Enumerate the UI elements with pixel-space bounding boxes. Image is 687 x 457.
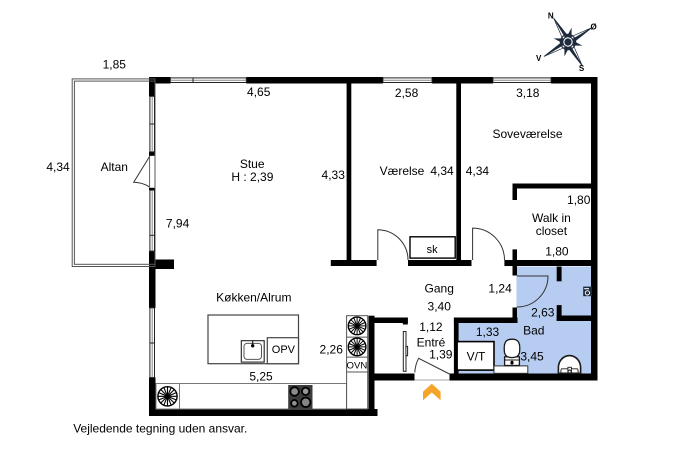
svg-text:OPV: OPV bbox=[272, 344, 296, 356]
svg-text:1,80: 1,80 bbox=[567, 193, 591, 207]
svg-text:Soveværelse: Soveværelse bbox=[492, 127, 562, 141]
svg-text:Gang: Gang bbox=[425, 282, 454, 296]
svg-text:7,94: 7,94 bbox=[166, 216, 190, 230]
svg-text:1,33: 1,33 bbox=[476, 325, 500, 339]
svg-text:4,34: 4,34 bbox=[430, 164, 454, 178]
svg-text:2,26: 2,26 bbox=[320, 343, 344, 357]
svg-text:V: V bbox=[536, 54, 542, 63]
svg-text:3,18: 3,18 bbox=[516, 86, 540, 100]
svg-text:1,39: 1,39 bbox=[429, 347, 453, 361]
svg-text:4,33: 4,33 bbox=[322, 168, 346, 182]
svg-text:Altan: Altan bbox=[101, 160, 128, 174]
svg-text:3,45: 3,45 bbox=[520, 349, 544, 363]
svg-text:1,80: 1,80 bbox=[545, 245, 569, 259]
svg-text:1,24: 1,24 bbox=[488, 281, 512, 295]
svg-text:closet: closet bbox=[536, 224, 568, 238]
svg-text:OVN: OVN bbox=[347, 360, 368, 371]
svg-text:4,34: 4,34 bbox=[466, 164, 490, 178]
svg-text:H : 2,39: H : 2,39 bbox=[231, 170, 273, 184]
svg-text:S: S bbox=[579, 64, 585, 73]
svg-text:sk: sk bbox=[427, 244, 439, 256]
svg-text:1,85: 1,85 bbox=[103, 58, 127, 72]
svg-text:2,58: 2,58 bbox=[395, 86, 419, 100]
svg-text:Værelse: Værelse bbox=[380, 164, 425, 178]
svg-text:Vejledende tegning uden ansvar: Vejledende tegning uden ansvar. bbox=[73, 422, 247, 436]
svg-text:Ø: Ø bbox=[590, 23, 596, 32]
svg-text:3,40: 3,40 bbox=[428, 300, 452, 314]
svg-text:Bad: Bad bbox=[523, 324, 544, 338]
svg-text:2,63: 2,63 bbox=[531, 305, 555, 319]
svg-text:1,12: 1,12 bbox=[419, 320, 443, 334]
svg-text:Walk in: Walk in bbox=[532, 211, 571, 225]
svg-text:4,65: 4,65 bbox=[247, 85, 271, 99]
svg-text:V/T: V/T bbox=[467, 349, 486, 363]
svg-text:N: N bbox=[548, 12, 554, 21]
svg-text:4,34: 4,34 bbox=[46, 160, 70, 174]
svg-text:5,25: 5,25 bbox=[249, 369, 273, 383]
svg-text:Køkken/Alrum: Køkken/Alrum bbox=[216, 291, 291, 305]
